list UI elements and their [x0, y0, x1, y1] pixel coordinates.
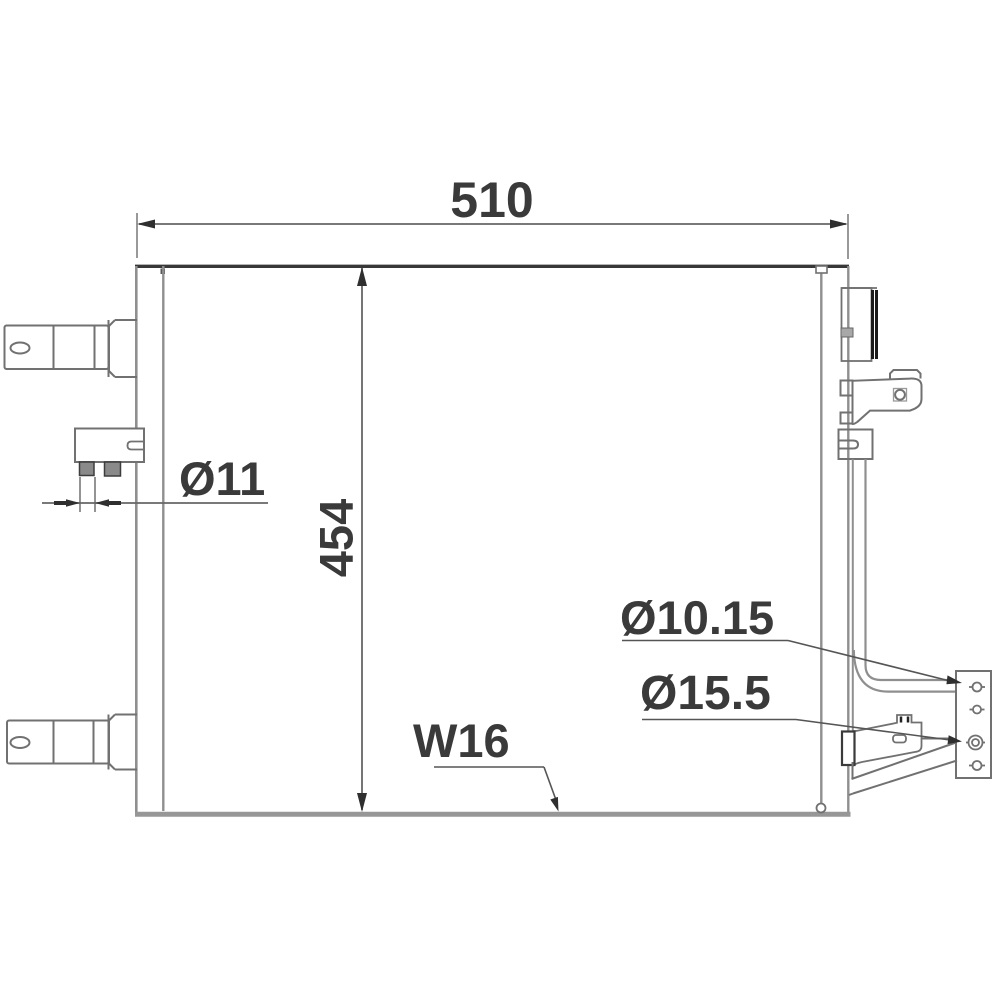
svg-text:Ø15.5: Ø15.5	[640, 667, 771, 720]
svg-text:454: 454	[310, 499, 363, 577]
svg-text:W16: W16	[413, 714, 510, 767]
svg-text:Ø10.15: Ø10.15	[620, 591, 774, 644]
svg-text:Ø11: Ø11	[179, 452, 265, 505]
svg-text:510: 510	[450, 172, 533, 228]
